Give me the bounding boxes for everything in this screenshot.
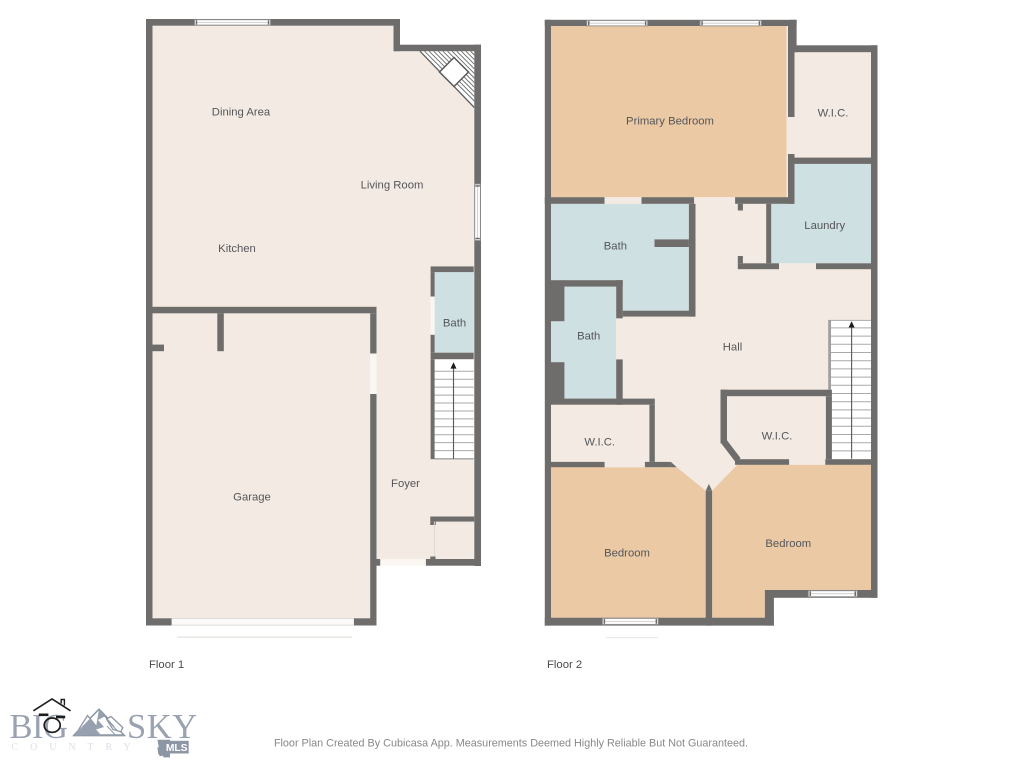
svg-text:Bath: Bath (443, 318, 466, 330)
svg-text:COUNTRY: COUNTRY (12, 742, 143, 753)
svg-text:Floor 2: Floor 2 (547, 659, 582, 671)
svg-text:Living Room: Living Room (361, 180, 424, 192)
svg-text:Primary Bedroom: Primary Bedroom (626, 116, 714, 128)
svg-text:MLS: MLS (166, 743, 188, 754)
svg-text:Dining Area: Dining Area (212, 107, 271, 119)
svg-text:Garage: Garage (233, 492, 271, 504)
svg-text:W.I.C.: W.I.C. (762, 431, 793, 443)
svg-text:W.I.C.: W.I.C. (584, 436, 615, 448)
svg-text:Kitchen: Kitchen (218, 243, 256, 255)
svg-text:Floor Plan Created By Cubicasa: Floor Plan Created By Cubicasa App. Meas… (274, 738, 748, 750)
svg-text:Laundry: Laundry (804, 220, 845, 232)
svg-text:Bedroom: Bedroom (604, 548, 650, 560)
svg-text:Bath: Bath (577, 331, 600, 343)
svg-text:Foyer: Foyer (391, 478, 420, 490)
svg-text:BIG: BIG (10, 708, 68, 746)
svg-text:Bedroom: Bedroom (765, 538, 811, 550)
svg-text:W.I.C.: W.I.C. (818, 108, 849, 120)
svg-text:Bath: Bath (604, 241, 627, 253)
svg-text:Hall: Hall (723, 342, 742, 354)
svg-text:Floor 1: Floor 1 (149, 659, 184, 671)
